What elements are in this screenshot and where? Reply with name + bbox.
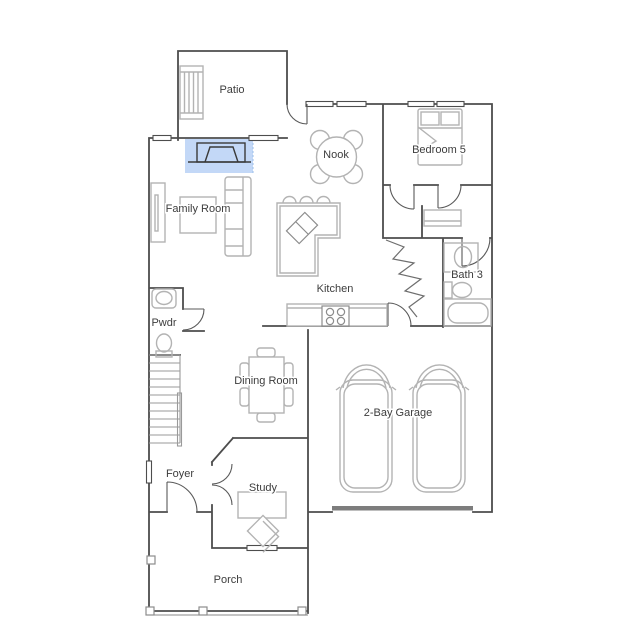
study-furniture bbox=[238, 492, 286, 552]
room-label-bedroom5: Bedroom 5 bbox=[412, 144, 466, 156]
room-label-study: Study bbox=[249, 482, 278, 494]
car bbox=[336, 365, 396, 492]
bed bbox=[418, 109, 462, 165]
patio-door bbox=[287, 104, 307, 124]
selection-highlight-rect[interactable] bbox=[185, 139, 253, 173]
stair-treads bbox=[149, 355, 180, 443]
room-label-kitchen: Kitchen bbox=[317, 283, 354, 295]
garage-contents bbox=[332, 365, 473, 511]
room-label-foyer: Foyer bbox=[166, 468, 194, 480]
toilet-bowl bbox=[453, 283, 472, 298]
car bbox=[409, 365, 469, 492]
study-double-doors bbox=[212, 464, 232, 505]
room-label-garage: 2-Bay Garage bbox=[364, 407, 432, 419]
room-label-porch: Porch bbox=[214, 574, 243, 586]
bench-slats bbox=[180, 72, 203, 113]
room-label-patio: Patio bbox=[219, 84, 244, 96]
front-door bbox=[167, 482, 197, 512]
bed-frame bbox=[418, 109, 462, 165]
dining-chair bbox=[257, 413, 275, 422]
window bbox=[153, 136, 171, 141]
tv bbox=[155, 195, 158, 231]
room-label-nook: Nook bbox=[323, 149, 349, 161]
pwdr-door bbox=[183, 309, 204, 330]
bath-sink bbox=[455, 247, 472, 268]
window bbox=[437, 102, 464, 107]
desk bbox=[238, 492, 286, 518]
family-room-furniture bbox=[151, 177, 251, 256]
toilet-tank bbox=[444, 282, 452, 298]
pantry-shelving bbox=[386, 240, 424, 317]
garage-entry-door bbox=[388, 303, 411, 326]
floor-plan-svg: Patio Nook Bedroom 5 Family Room Bath 3 … bbox=[0, 0, 639, 639]
window bbox=[249, 136, 278, 141]
pwdr-sink bbox=[156, 292, 172, 305]
burner bbox=[326, 308, 333, 315]
cooktop bbox=[322, 306, 349, 326]
stairs bbox=[149, 355, 182, 446]
porch-post bbox=[146, 607, 154, 615]
car-body-inner bbox=[344, 384, 388, 488]
window bbox=[306, 102, 333, 107]
room-label-dining: Dining Room bbox=[234, 375, 298, 387]
bar-stools bbox=[283, 197, 330, 204]
porch-post bbox=[147, 556, 155, 564]
burner bbox=[337, 308, 344, 315]
floor-plan-canvas: Patio Nook Bedroom 5 Family Room Bath 3 … bbox=[0, 0, 639, 639]
shelf bbox=[424, 210, 461, 226]
bench-frame bbox=[180, 66, 203, 119]
porch-post bbox=[199, 607, 207, 615]
pwdr-toilet-bowl bbox=[157, 334, 172, 352]
burner bbox=[337, 317, 344, 324]
fireplace-selection-highlight[interactable] bbox=[185, 139, 253, 173]
burner bbox=[326, 317, 333, 324]
room-label-family: Family Room bbox=[166, 203, 231, 215]
kitchen-fixtures bbox=[277, 197, 387, 327]
bath3-door bbox=[462, 238, 490, 266]
dining-chair bbox=[257, 348, 275, 357]
car-body bbox=[340, 380, 392, 492]
patio-bench bbox=[180, 66, 203, 119]
dining-chair bbox=[284, 388, 293, 406]
room-label-pwdr: Pwdr bbox=[151, 317, 176, 329]
closet-door bbox=[438, 185, 461, 208]
sofa bbox=[225, 177, 251, 256]
window bbox=[408, 102, 434, 107]
garage-door bbox=[332, 506, 473, 511]
closet-shelf bbox=[424, 210, 461, 226]
kitchen-island bbox=[277, 203, 340, 276]
window bbox=[337, 102, 366, 107]
bedroom5-door bbox=[390, 185, 414, 209]
room-label-bath3: Bath 3 bbox=[451, 269, 483, 281]
dining-chair bbox=[240, 388, 249, 406]
porch-post bbox=[298, 607, 306, 615]
bathtub-basin bbox=[448, 303, 488, 323]
window bbox=[147, 461, 152, 483]
